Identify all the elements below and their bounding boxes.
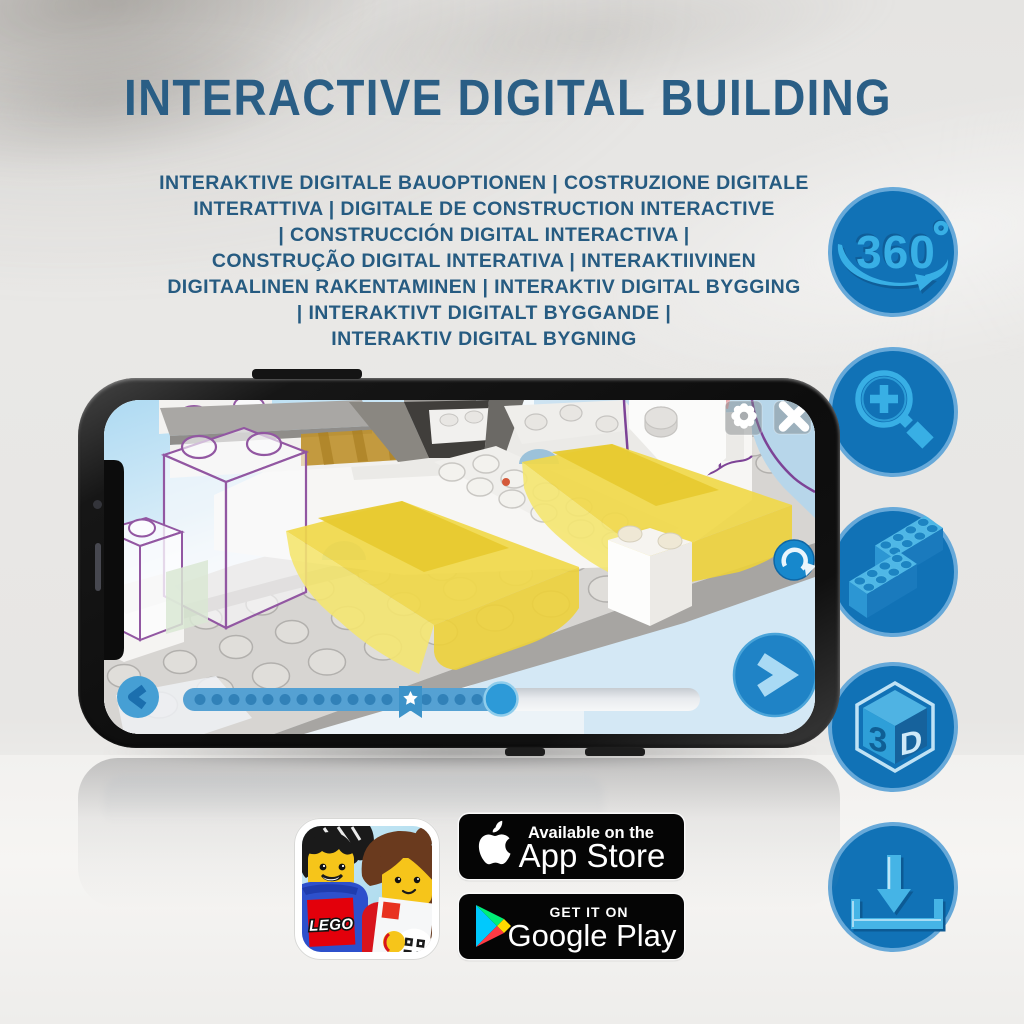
- svg-text:3: 3: [869, 719, 888, 761]
- svg-text:D: D: [900, 723, 922, 763]
- svg-text:LEGO: LEGO: [309, 916, 354, 935]
- svg-text:360: 360: [856, 226, 936, 278]
- svg-text:Google Play: Google Play: [508, 918, 677, 953]
- svg-text:App Store: App Store: [519, 837, 666, 874]
